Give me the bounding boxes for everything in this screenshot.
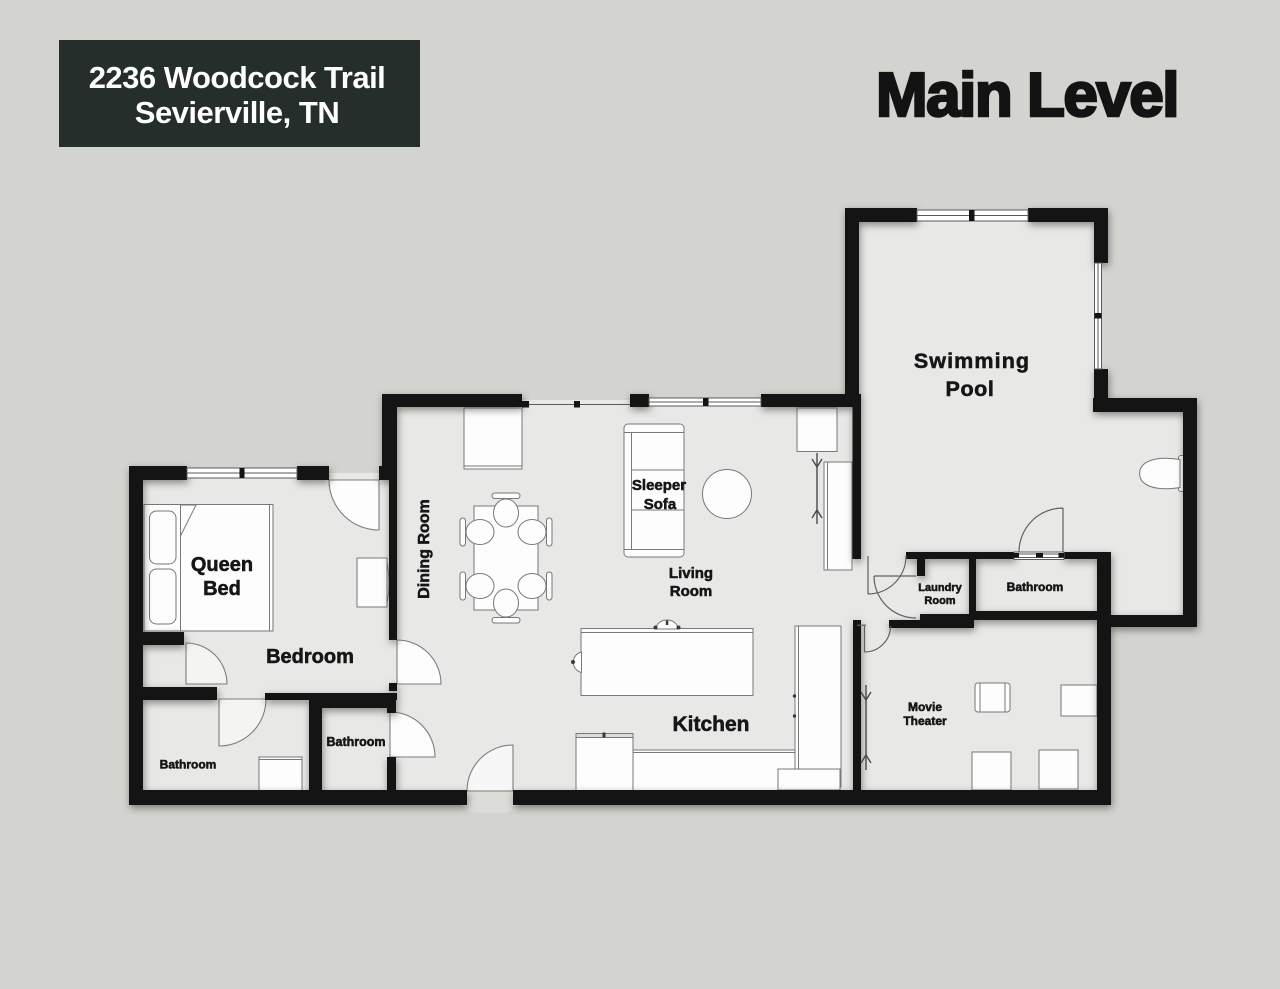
- svg-text:Movie: Movie: [908, 700, 942, 714]
- svg-text:Pool: Pool: [946, 377, 995, 401]
- svg-text:Bedroom: Bedroom: [266, 646, 354, 668]
- svg-text:Theater: Theater: [903, 714, 947, 728]
- svg-text:Room: Room: [670, 583, 713, 600]
- svg-text:Queen: Queen: [191, 554, 253, 576]
- svg-text:Sevierville, TN: Sevierville, TN: [135, 95, 339, 130]
- svg-text:Bed: Bed: [203, 578, 241, 600]
- svg-text:Room: Room: [924, 595, 955, 607]
- svg-text:Bathroom: Bathroom: [326, 735, 385, 749]
- svg-text:Laundry: Laundry: [918, 582, 962, 594]
- svg-text:Kitchen: Kitchen: [672, 713, 749, 736]
- svg-text:Main Level: Main Level: [876, 61, 1178, 130]
- svg-text:2236 Woodcock Trail: 2236 Woodcock Trail: [89, 60, 386, 95]
- svg-text:Sofa: Sofa: [644, 496, 677, 513]
- svg-text:Swimming: Swimming: [914, 349, 1030, 373]
- svg-text:Sleeper: Sleeper: [632, 477, 686, 494]
- svg-text:Bathroom: Bathroom: [160, 758, 217, 772]
- svg-text:Living: Living: [669, 565, 713, 582]
- svg-text:Bathroom: Bathroom: [1007, 580, 1064, 594]
- svg-text:Dining Room: Dining Room: [416, 499, 433, 599]
